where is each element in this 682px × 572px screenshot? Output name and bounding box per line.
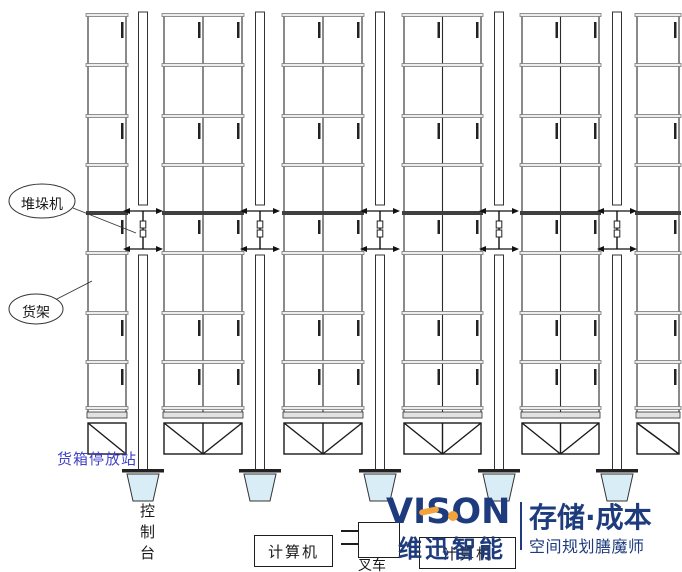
crane-rail bbox=[359, 12, 401, 501]
container-station-label: 货箱停放站 bbox=[57, 448, 137, 469]
forklift-label: 叉车 bbox=[350, 555, 394, 572]
crane-rail bbox=[596, 12, 638, 501]
vison-brand-chinese: 维迅智能 bbox=[398, 529, 506, 564]
logo-tagline-sub: 空间规划膳魔师 bbox=[529, 533, 645, 557]
logo-divider bbox=[520, 502, 522, 550]
crane-rail bbox=[122, 12, 164, 501]
rack-label: 货架 bbox=[9, 302, 63, 322]
vison-logo-text-n: N bbox=[481, 492, 510, 532]
storage-rack-double bbox=[162, 14, 244, 455]
control-console-label: 控制台 bbox=[138, 503, 156, 569]
container-station-box bbox=[284, 423, 362, 454]
stacker-crane-symbol bbox=[479, 208, 519, 252]
crane-rail bbox=[239, 12, 281, 501]
computer-box-left-label: 计算机 bbox=[268, 541, 319, 562]
storage-rack-single bbox=[86, 14, 128, 455]
computer-box-left: 计算机 bbox=[254, 535, 333, 567]
storage-rack-double bbox=[402, 14, 483, 455]
control-console-shape bbox=[127, 474, 159, 501]
container-station-box bbox=[522, 423, 599, 454]
container-station-box bbox=[404, 423, 481, 454]
container-station-box bbox=[637, 423, 679, 454]
vison-logo-wordmark: VISON bbox=[386, 494, 510, 530]
warehouse-diagram-canvas bbox=[0, 0, 682, 572]
stacker-crane-symbol bbox=[240, 208, 280, 252]
storage-rack-double bbox=[282, 14, 364, 455]
container-station-box bbox=[164, 423, 242, 454]
control-console-shape bbox=[244, 474, 276, 501]
vison-logo-o-dot-icon bbox=[448, 511, 458, 521]
logo-tagline-main: 存储·成本 bbox=[529, 496, 652, 536]
stacker-crane-symbol bbox=[597, 208, 637, 252]
storage-rack-single bbox=[635, 14, 681, 455]
storage-rack-double bbox=[520, 14, 601, 455]
forklift-fork-bottom bbox=[341, 543, 358, 545]
stacker-crane-symbol bbox=[360, 208, 400, 252]
crane-rail bbox=[478, 12, 520, 501]
asrs-warehouse-diagram: 堆垛机 货架 货箱停放站 控制台 计算机 计算机 叉车 VISON 维迅智能 存… bbox=[0, 0, 682, 572]
stacker-crane-label: 堆垛机 bbox=[9, 194, 75, 214]
forklift-fork-top bbox=[341, 530, 358, 532]
